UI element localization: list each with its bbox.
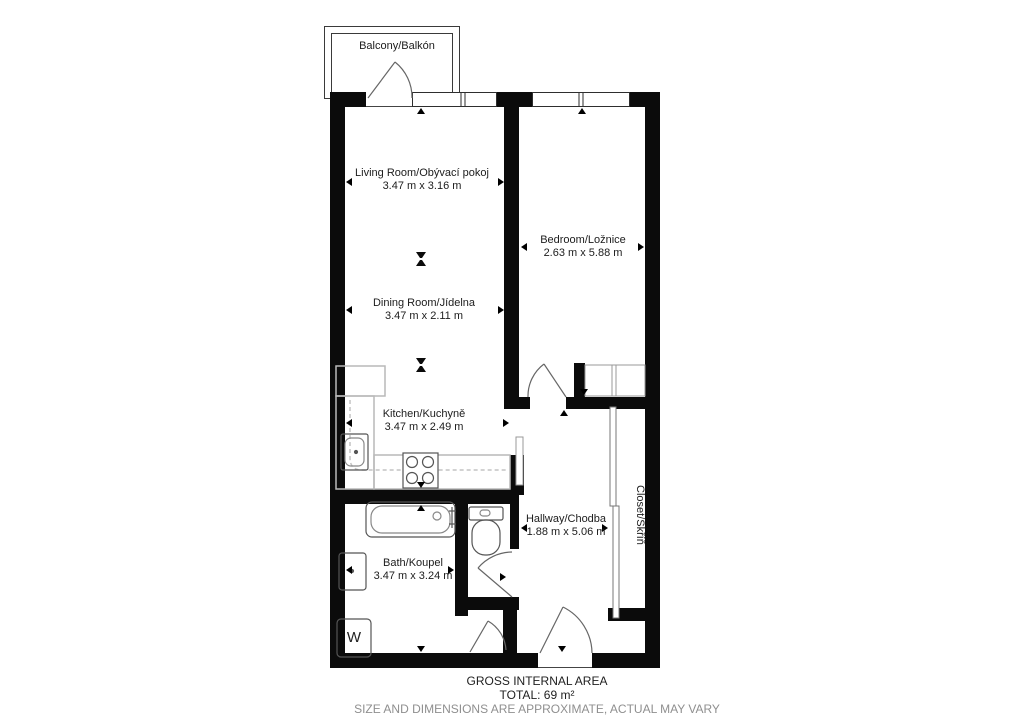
footer-total: TOTAL: 69 m² xyxy=(262,688,812,702)
living-room-dims: 3.47 m x 3.16 m xyxy=(332,180,512,193)
bath-dims: 3.47 m x 3.24 m xyxy=(323,570,503,583)
wall-bottom-left xyxy=(330,653,538,668)
wall-top-right xyxy=(630,92,660,107)
dining-room-name: Dining Room/Jídelna xyxy=(334,297,514,310)
bedroom-name: Bedroom/Ložnice xyxy=(493,234,673,247)
dim-arrow-bath-top xyxy=(417,505,425,511)
kitchen-name: Kitchen/Kuchyně xyxy=(334,408,514,421)
bathtub-icon xyxy=(366,502,456,537)
living-room-name: Living Room/Obývací pokoj xyxy=(332,167,512,180)
bath-label: Bath/Koupel 3.47 m x 3.24 m xyxy=(323,557,503,583)
bath-name: Bath/Koupel xyxy=(323,557,503,570)
dim-arrow-bath-bottom xyxy=(417,646,425,652)
bedroom-dims: 2.63 m x 5.88 m xyxy=(493,247,673,260)
dim-arrow-hallway-bottom xyxy=(558,646,566,652)
footer-disclaimer: SIZE AND DIMENSIONS ARE APPROXIMATE, ACT… xyxy=(262,702,812,717)
washer-label: W xyxy=(337,629,371,646)
dim-arrow-hallway-top xyxy=(560,410,568,416)
bedroom-door-arc xyxy=(528,364,566,397)
bedroom-window xyxy=(532,92,630,107)
living-room-label: Living Room/Obývací pokoj 3.47 m x 3.16 … xyxy=(332,167,512,193)
floor-plan: Balcony/Balkón xyxy=(0,0,1024,723)
entrance-door-opening xyxy=(538,653,592,668)
dim-arrow-bedroom-top xyxy=(578,108,586,114)
wall-bottom-right xyxy=(592,653,660,668)
dining-room-dims: 3.47 m x 2.11 m xyxy=(334,310,514,323)
closet-label: Closet/Skříň xyxy=(620,455,646,575)
dim-arrow-kitchen-bottom xyxy=(417,482,425,488)
footer-area-title: GROSS INTERNAL AREA xyxy=(262,674,812,688)
wall-wc-bottom xyxy=(455,597,519,610)
bedroom-wardrobe-icon xyxy=(585,365,645,396)
bedroom-label: Bedroom/Ložnice 2.63 m x 5.88 m xyxy=(493,234,673,260)
wall-top-left xyxy=(330,92,368,107)
dining-room-label: Dining Room/Jídelna 3.47 m x 2.11 m xyxy=(334,297,514,323)
living-room-window xyxy=(412,92,497,107)
bathroom-door-arc xyxy=(470,621,506,652)
kitchen-label: Kitchen/Kuchyně 3.47 m x 2.49 m xyxy=(334,408,514,434)
dim-arrow-living-top xyxy=(417,108,425,114)
kitchen-sink-icon xyxy=(341,434,368,470)
wall-hall-nook xyxy=(503,610,517,654)
entrance-door-arc xyxy=(540,607,592,653)
wall-closet-bottom xyxy=(608,608,646,621)
wall-outer-right xyxy=(645,92,660,668)
footer: GROSS INTERNAL AREA TOTAL: 69 m² SIZE AN… xyxy=(262,674,812,717)
wall-kitchen-bath xyxy=(330,489,519,504)
kitchen-dims: 3.47 m x 2.49 m xyxy=(334,421,514,434)
dim-arrow-bedroom-bottom xyxy=(580,389,588,395)
wall-top-middle xyxy=(497,92,532,107)
balcony-door-opening xyxy=(366,92,412,107)
balcony-label: Balcony/Balkón xyxy=(317,40,477,53)
